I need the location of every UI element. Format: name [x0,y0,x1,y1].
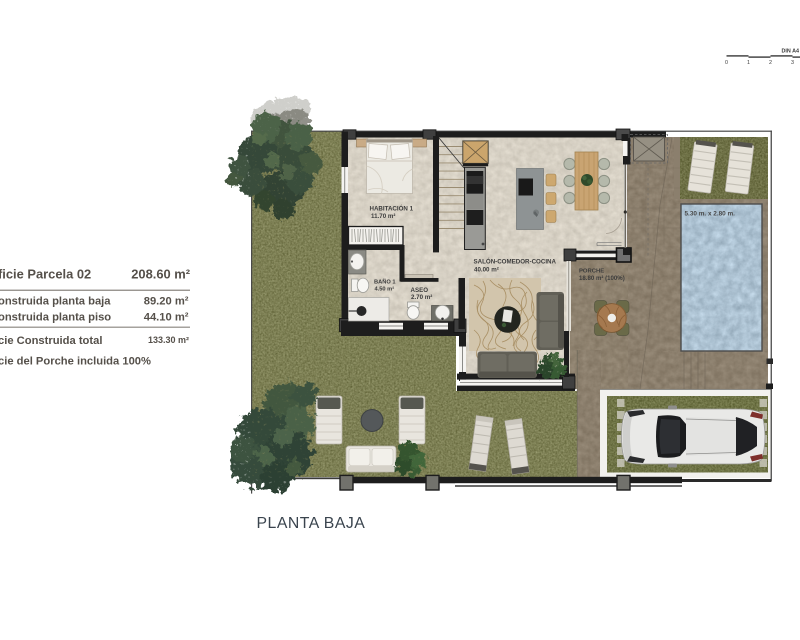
svg-text:44.10 m²: 44.10 m² [144,311,189,323]
svg-text:18.80 m² (100%): 18.80 m² (100%) [579,275,625,282]
svg-text:4.50 m²: 4.50 m² [375,286,395,293]
svg-text:89.20 m²: 89.20 m² [144,296,189,308]
svg-text:0: 0 [725,60,728,66]
svg-text:cie del Porche incluida 100%: cie del Porche incluida 100% [0,356,151,368]
svg-text:SALÓN-COMEDOR-COCINA: SALÓN-COMEDOR-COCINA [474,258,557,266]
svg-text:cie Construida total: cie Construida total [0,335,102,347]
svg-text:5.30 m. x 2.80 m.: 5.30 m. x 2.80 m. [685,211,736,218]
svg-text:PLANTA BAJA: PLANTA BAJA [257,515,366,532]
svg-text:2: 2 [769,60,772,66]
svg-text:onstruida planta piso: onstruida planta piso [0,311,111,323]
svg-text:HABITACIÓN 1: HABITACIÓN 1 [370,205,414,213]
svg-text:DIN A4: DIN A4 [782,49,799,55]
svg-text:133.30 m²: 133.30 m² [148,335,189,345]
svg-text:2.70 m²: 2.70 m² [411,294,432,301]
svg-text:40.00 m²: 40.00 m² [474,267,499,274]
svg-text:3: 3 [791,60,794,66]
svg-text:ficie Parcela 02: ficie Parcela 02 [0,267,91,282]
svg-text:PORCHE: PORCHE [579,268,604,274]
svg-text:11.70 m²: 11.70 m² [371,213,395,220]
svg-text:ASEO: ASEO [411,287,429,294]
svg-text:1: 1 [747,60,750,66]
svg-text:BAÑO 1: BAÑO 1 [374,279,396,286]
svg-text:208.60 m²: 208.60 m² [131,267,190,282]
svg-text:onstruida planta baja: onstruida planta baja [0,296,111,308]
